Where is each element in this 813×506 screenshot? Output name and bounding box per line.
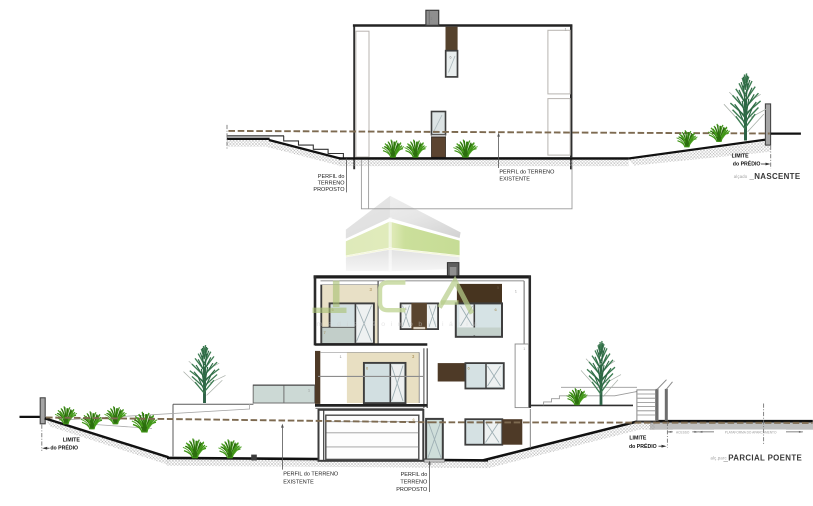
svg-text:_NASCENTE: _NASCENTE: [749, 172, 801, 181]
svg-text:6: 6: [450, 56, 452, 60]
svg-text:PLATAFORMA DO APARCAMENTO: PLATAFORMA DO APARCAMENTO: [725, 430, 777, 434]
svg-text:PERFIL do: PERFIL do: [401, 472, 428, 478]
svg-text:LIMITE: LIMITE: [732, 153, 750, 159]
svg-text:do PRÉDIO: do PRÉDIO: [733, 160, 761, 168]
svg-text:PERFIL do TERRENO: PERFIL do TERRENO: [499, 170, 555, 176]
svg-text:do PRÉDIO: do PRÉDIO: [629, 442, 657, 450]
svg-text:2: 2: [431, 17, 433, 21]
svg-text:do PRÉDIO: do PRÉDIO: [50, 444, 78, 452]
svg-text:EXISTENTE: EXISTENTE: [499, 176, 530, 182]
svg-text:TERRENO: TERRENO: [400, 480, 428, 486]
svg-text:_PARCIAL POENTE: _PARCIAL POENTE: [723, 453, 803, 462]
svg-text:PERFIL do TERRENO: PERFIL do TERRENO: [283, 472, 339, 478]
svg-text:ACESSO: ACESSO: [676, 430, 690, 434]
svg-text:PROPOSTO: PROPOSTO: [313, 187, 345, 193]
svg-text:1: 1: [308, 389, 310, 393]
svg-text:PROPOSTO: PROPOSTO: [396, 487, 428, 493]
svg-text:LIMITE: LIMITE: [63, 437, 81, 443]
svg-text:LIMITE: LIMITE: [629, 436, 647, 442]
svg-text:1: 1: [523, 347, 525, 351]
svg-text:EXISTENTE: EXISTENTE: [283, 479, 314, 485]
svg-text:alçado: alçado: [734, 174, 748, 179]
svg-text:PERFIL do: PERFIL do: [318, 174, 345, 180]
svg-text:TERRENO: TERRENO: [318, 181, 346, 187]
svg-text:5: 5: [497, 286, 499, 290]
svg-text:m e d i a ç ã o i m o b i l: m e d i a ç ã o i m o b i l i á r i a: [317, 321, 480, 328]
